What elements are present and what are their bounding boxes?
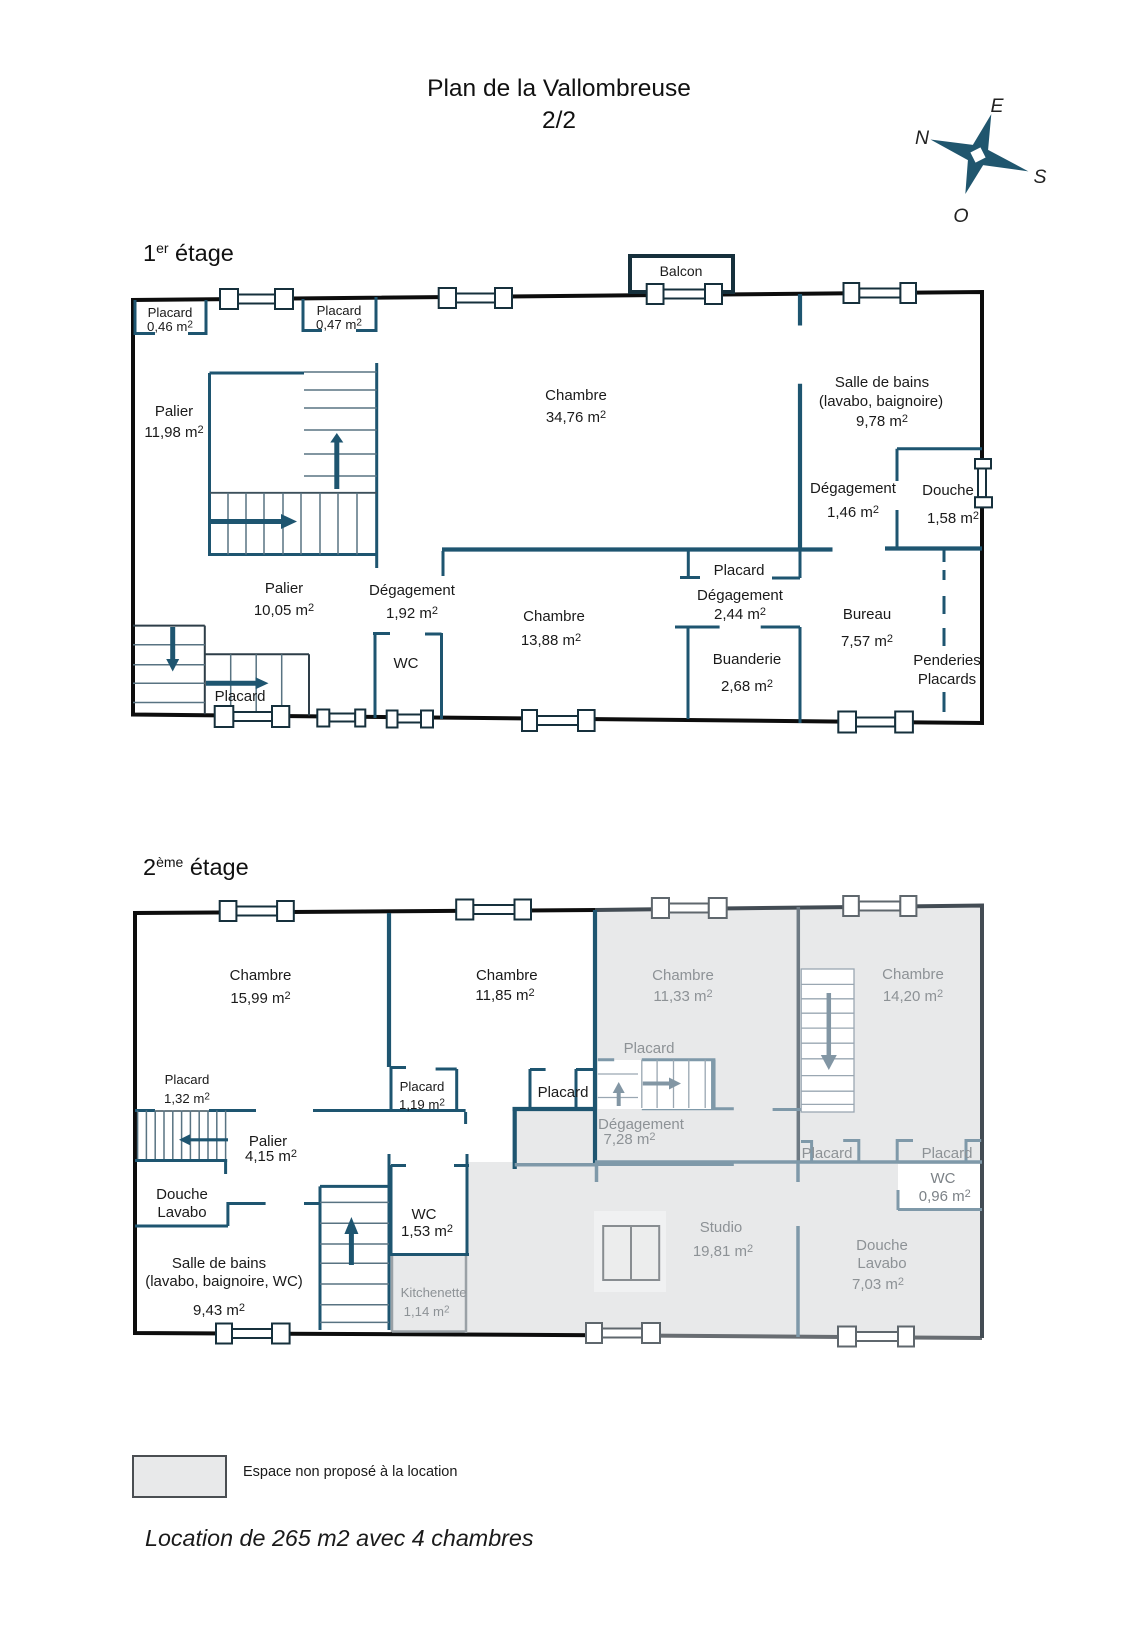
svg-text:Chambre: Chambre (652, 967, 714, 984)
svg-text:11,98 m2: 11,98 m2 (144, 424, 203, 441)
svg-text:WC: WC (412, 1206, 437, 1223)
svg-text:Studio: Studio (700, 1219, 743, 1236)
svg-text:Placard: Placard (624, 1040, 675, 1057)
svg-text:Palier: Palier (155, 403, 193, 420)
svg-text:O: O (953, 205, 968, 227)
svg-text:Placards: Placards (918, 671, 976, 688)
svg-text:9,78 m2: 9,78 m2 (856, 413, 908, 430)
svg-text:14,20 m2: 14,20 m2 (883, 988, 943, 1005)
svg-text:9,43 m2: 9,43 m2 (193, 1302, 245, 1319)
svg-text:0,46 m2: 0,46 m2 (147, 319, 193, 334)
svg-text:7,28 m2: 7,28 m2 (604, 1131, 656, 1148)
svg-text:Location de 265 m2 avec 4 cham: Location de 265 m2 avec 4 chambres (145, 1525, 534, 1551)
svg-text:Chambre: Chambre (882, 966, 944, 983)
svg-text:S: S (1033, 166, 1046, 188)
svg-text:Plan de la Vallombreuse: Plan de la Vallombreuse (427, 75, 691, 102)
svg-text:1,53 m2: 1,53 m2 (401, 1223, 453, 1240)
svg-text:0,47 m2: 0,47 m2 (316, 317, 362, 332)
svg-text:Douche: Douche (922, 482, 974, 499)
svg-text:2,44 m2: 2,44 m2 (714, 606, 766, 623)
svg-text:Salle de bains: Salle de bains (835, 374, 929, 391)
svg-text:Dégagement: Dégagement (810, 480, 897, 497)
svg-text:Placard: Placard (922, 1145, 973, 1162)
svg-text:Placard: Placard (165, 1072, 210, 1087)
svg-text:Dégagement: Dégagement (369, 582, 456, 599)
svg-text:Lavabo: Lavabo (857, 1255, 906, 1272)
svg-text:Chambre: Chambre (476, 967, 538, 984)
svg-text:Placard: Placard (148, 305, 193, 320)
svg-text:0,96 m2: 0,96 m2 (919, 1188, 971, 1205)
svg-text:2/2: 2/2 (542, 107, 576, 134)
svg-text:Placard: Placard (538, 1084, 589, 1101)
svg-text:Chambre: Chambre (523, 608, 585, 625)
svg-text:Placard: Placard (400, 1079, 445, 1094)
svg-text:Placard: Placard (802, 1145, 853, 1162)
svg-text:Placard: Placard (317, 303, 362, 318)
svg-text:34,76 m2: 34,76 m2 (546, 409, 606, 426)
svg-text:Espace non proposé à la locati: Espace non proposé à la location (243, 1464, 457, 1480)
svg-text:Dégagement: Dégagement (697, 587, 784, 604)
svg-text:1,46 m2: 1,46 m2 (827, 504, 879, 521)
svg-text:Douche: Douche (856, 1237, 908, 1254)
svg-text:7,57 m2: 7,57 m2 (841, 633, 893, 650)
svg-text:13,88 m2: 13,88 m2 (521, 632, 581, 649)
svg-text:E: E (990, 95, 1004, 117)
svg-text:Bureau: Bureau (843, 606, 891, 623)
svg-text:1,19 m2: 1,19 m2 (399, 1097, 445, 1112)
svg-text:1,14 m2: 1,14 m2 (404, 1304, 450, 1319)
svg-text:(lavabo, baignoire): (lavabo, baignoire) (819, 393, 943, 410)
svg-text:Placard: Placard (714, 562, 765, 579)
svg-text:1,92 m2: 1,92 m2 (386, 605, 438, 622)
svg-text:11,33 m2: 11,33 m2 (653, 988, 712, 1005)
svg-text:WC: WC (931, 1170, 956, 1187)
svg-text:Palier: Palier (265, 580, 303, 597)
svg-text:Chambre: Chambre (230, 967, 292, 984)
svg-text:10,05 m2: 10,05 m2 (254, 602, 314, 619)
svg-text:(lavabo, baignoire, WC): (lavabo, baignoire, WC) (145, 1273, 303, 1290)
svg-text:7,03 m2: 7,03 m2 (852, 1276, 904, 1293)
svg-text:Penderies: Penderies (913, 652, 981, 669)
svg-text:Buanderie: Buanderie (713, 651, 781, 668)
svg-text:2,68 m2: 2,68 m2 (721, 678, 773, 695)
svg-text:11,85 m2: 11,85 m2 (475, 987, 534, 1004)
svg-text:4,15 m2: 4,15 m2 (245, 1148, 297, 1165)
svg-text:Placard: Placard (215, 688, 266, 705)
svg-text:19,81 m2: 19,81 m2 (693, 1243, 753, 1260)
svg-text:Chambre: Chambre (545, 387, 607, 404)
svg-text:WC: WC (394, 655, 419, 672)
svg-text:1,58 m2: 1,58 m2 (927, 510, 979, 527)
svg-text:Lavabo: Lavabo (157, 1204, 206, 1221)
svg-text:1,32 m2: 1,32 m2 (164, 1091, 210, 1106)
svg-text:Balcon: Balcon (660, 263, 703, 279)
svg-text:Douche: Douche (156, 1186, 208, 1203)
svg-text:Salle de bains: Salle de bains (172, 1255, 266, 1272)
svg-text:N: N (915, 127, 930, 149)
svg-text:15,99 m2: 15,99 m2 (230, 990, 290, 1007)
svg-text:Kitchenette: Kitchenette (401, 1285, 467, 1300)
